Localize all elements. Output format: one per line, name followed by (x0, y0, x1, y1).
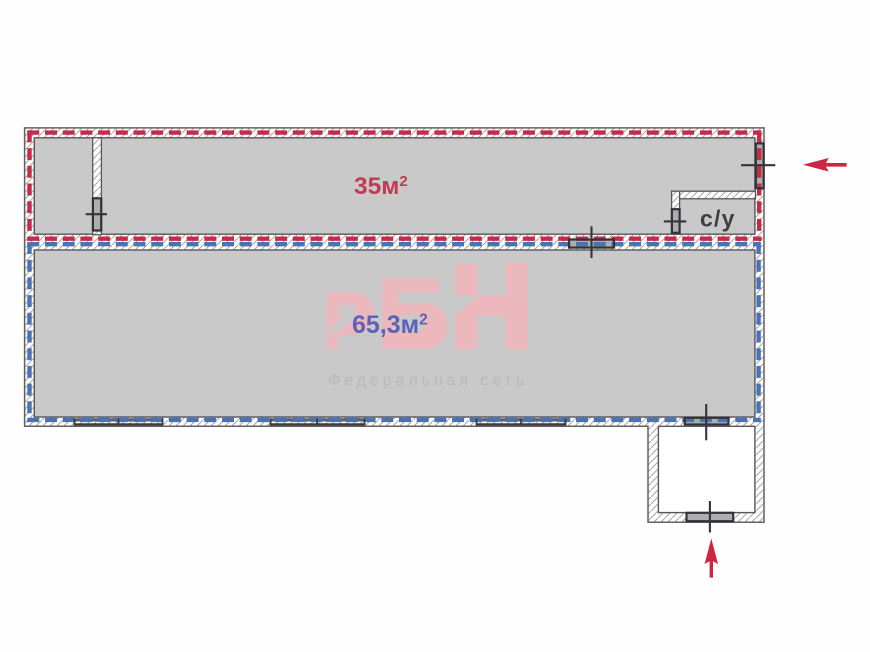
svg-text:Федеральная сеть: Федеральная сеть (328, 371, 528, 390)
svg-text:с/у: с/у (700, 206, 736, 232)
svg-text:65,3м2: 65,3м2 (352, 311, 428, 339)
